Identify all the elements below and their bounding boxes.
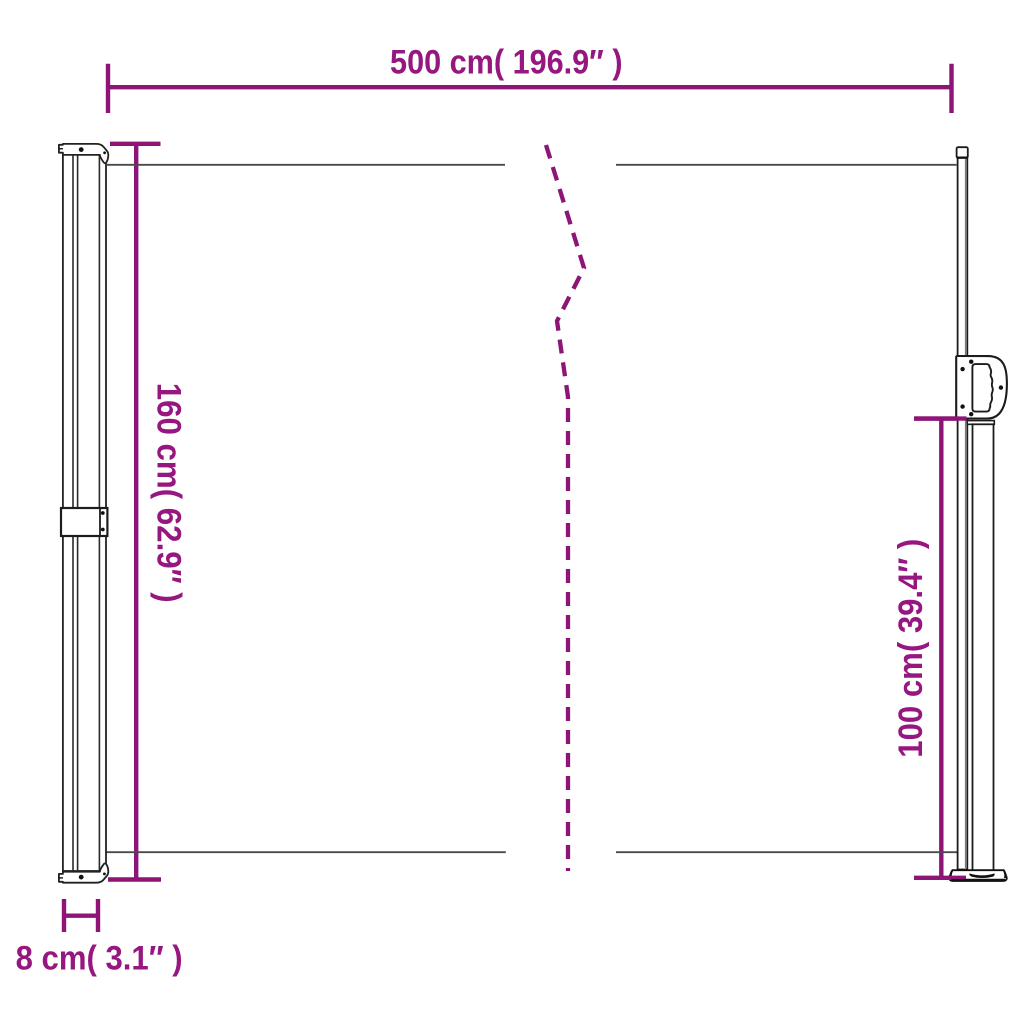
svg-text:160 cm( 62.9″ ): 160 cm( 62.9″ ) [149,383,187,603]
svg-text:8 cm( 3.1″ ): 8 cm( 3.1″ ) [16,939,183,977]
svg-text:100 cm( 39.4″ ): 100 cm( 39.4″ ) [892,539,930,758]
svg-text:500 cm( 196.9″ ): 500 cm( 196.9″ ) [390,44,623,82]
